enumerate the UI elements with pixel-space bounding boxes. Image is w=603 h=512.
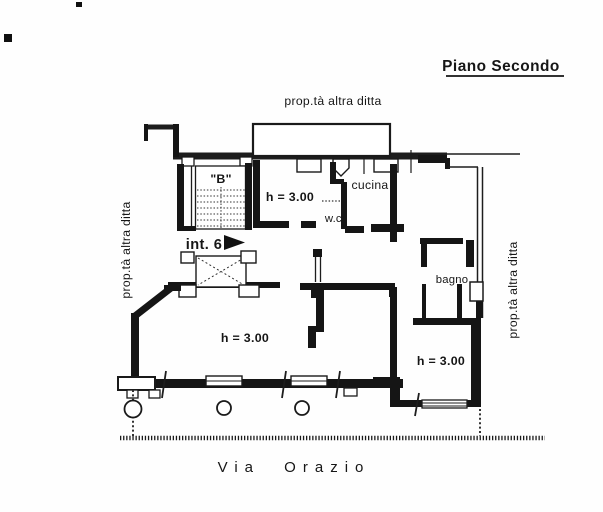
ceiling-height-label-living: h = 3.00 <box>221 331 269 345</box>
floor-plan-drawing: Piano Secondo prop.tà altra ditta prop.t… <box>0 0 603 512</box>
stairwell-label: "B" <box>210 172 231 186</box>
entrance-label: int. 6 <box>186 237 222 253</box>
bathroom-window <box>470 282 483 301</box>
floorplan-page: Piano Secondo prop.tà altra ditta prop.t… <box>0 0 603 512</box>
boundary-label-left: prop.tà altra ditta <box>119 201 133 298</box>
drawing-title: Piano Secondo <box>442 58 560 75</box>
street-label: Via Orazio <box>218 459 371 476</box>
wc-label: w.c. <box>324 213 345 225</box>
bathroom-label: bagno <box>436 274 468 286</box>
kitchen-label: cucina <box>351 178 388 192</box>
column-marker <box>295 401 309 415</box>
bedroom-window <box>422 400 467 408</box>
balcony-slab <box>118 377 155 390</box>
ceiling-height-label-bedroom: h = 3.00 <box>417 354 465 368</box>
boundary-label-top: prop.tà altra ditta <box>284 94 381 108</box>
boundary-label-right: prop.tà altra ditta <box>506 241 520 338</box>
ceiling-height-label-top-room: h = 3.00 <box>266 190 314 204</box>
column-marker <box>125 401 142 418</box>
column-marker <box>217 401 231 415</box>
kitchen-walls <box>390 164 397 242</box>
